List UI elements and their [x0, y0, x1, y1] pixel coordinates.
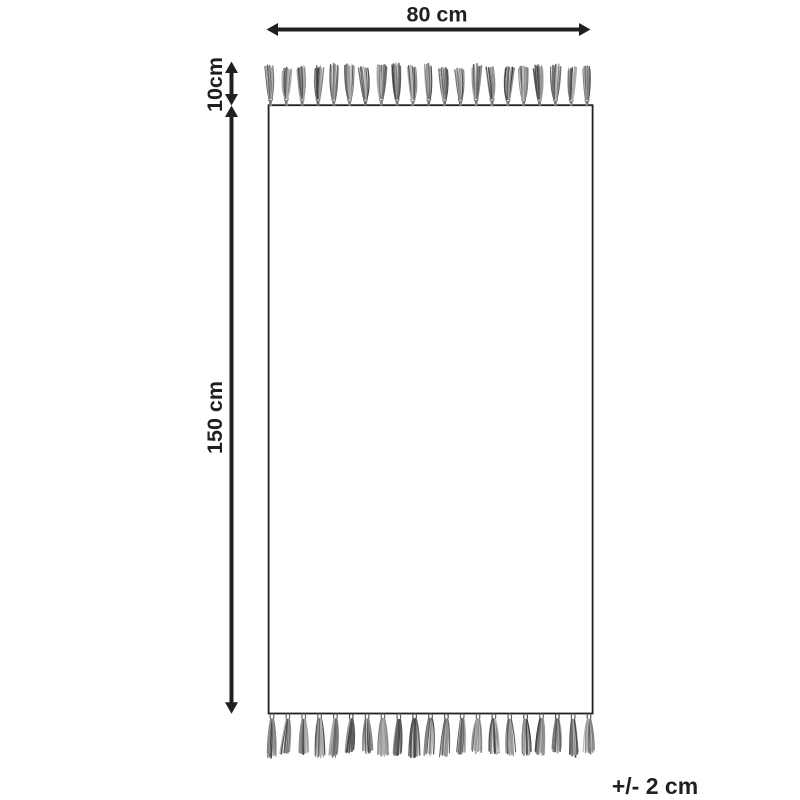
svg-text:80 cm: 80 cm	[407, 3, 468, 27]
svg-text:150 cm: 150 cm	[203, 381, 227, 454]
svg-text:+/- 2 cm: +/- 2 cm	[612, 773, 698, 799]
svg-text:10cm: 10cm	[203, 57, 227, 112]
